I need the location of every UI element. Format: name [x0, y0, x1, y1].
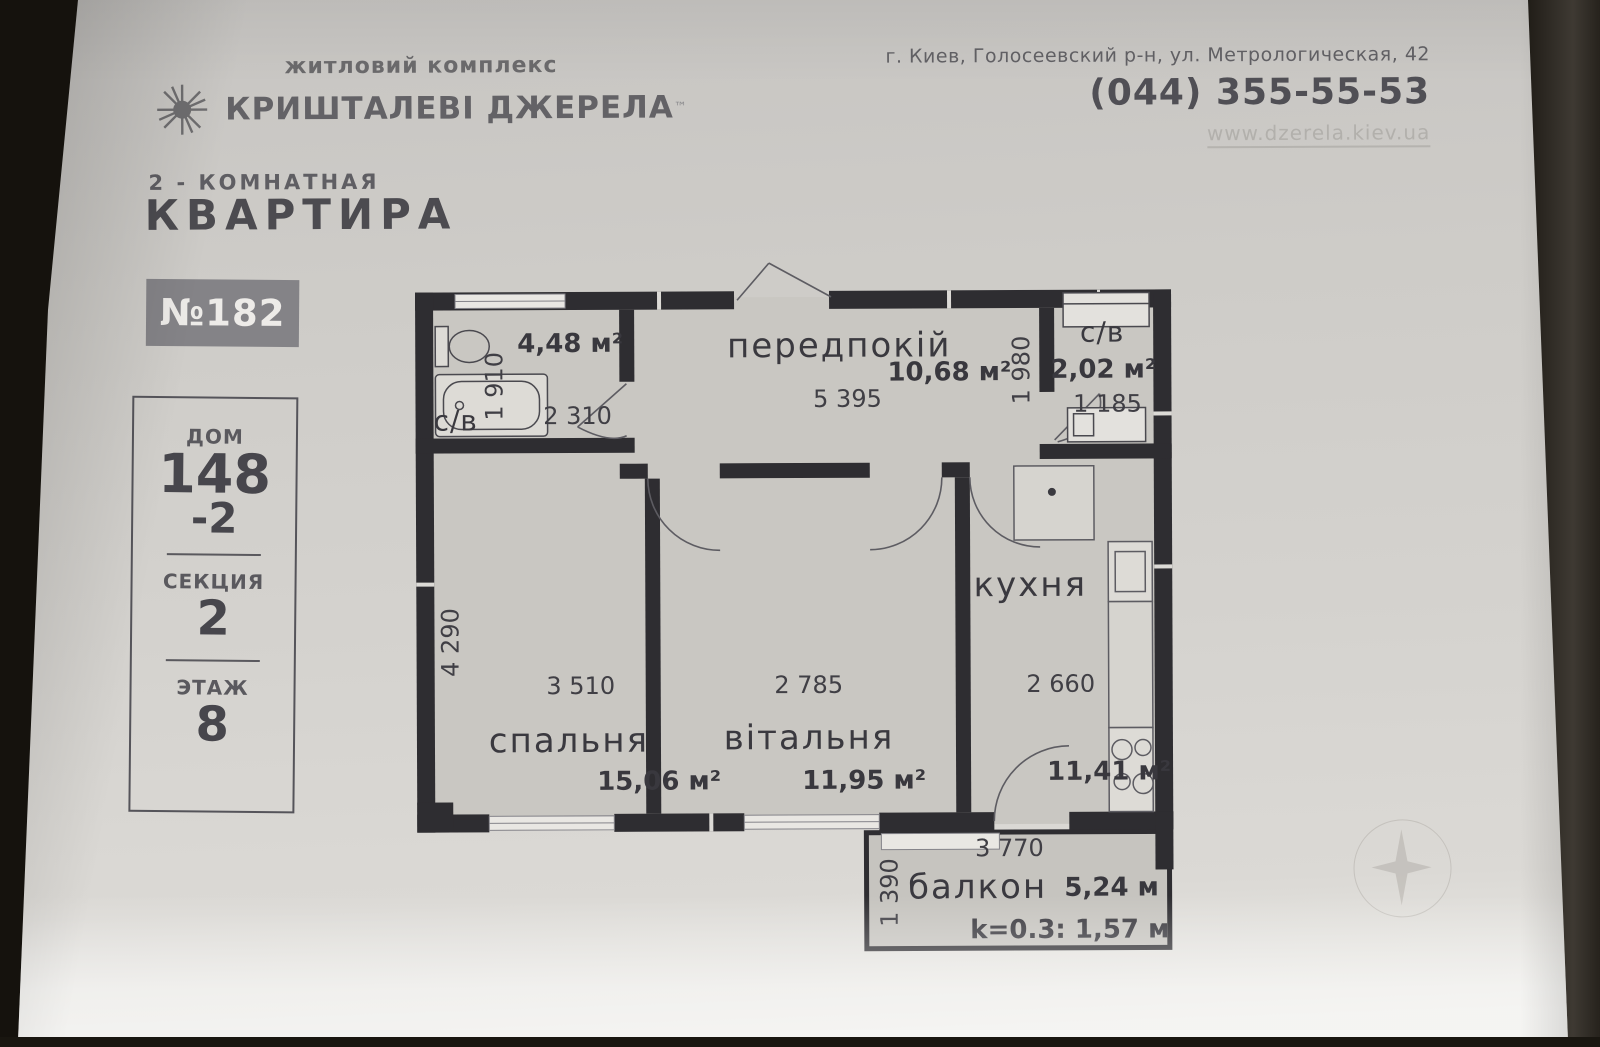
- bedroom-label: спальня: [489, 721, 649, 762]
- bedroom-area: 15,06 м²: [597, 766, 721, 797]
- kitchen-counter-corner: [1014, 466, 1094, 540]
- paper-content: житловий комплекс КРИШТАЛЕВІ ДЖЕРЕЛА™: [0, 0, 1600, 1044]
- kitchen-dim-h: 2 660: [1026, 670, 1095, 698]
- kitchen-area: 11,41 м²: [1047, 756, 1171, 787]
- complex-name: КРИШТАЛЕВІ ДЖЕРЕЛА: [225, 90, 674, 128]
- living-label: вітальня: [724, 718, 895, 759]
- hallway-dim-h: 5 395: [813, 385, 882, 413]
- living-dim-h: 2 785: [774, 671, 843, 699]
- balcony-area: 5,24 м: [1064, 872, 1159, 902]
- balcony-coefficient: k=0.3: 1,57 м: [970, 914, 1169, 945]
- balcony-label: балкон: [908, 867, 1047, 908]
- apartment-info-box: ДОМ 148 -2 СЕКЦИЯ 2 ЭТАЖ 8: [128, 396, 298, 814]
- house-value2: -2: [191, 500, 238, 538]
- house-value: 148: [158, 448, 271, 500]
- balcony-dim-v: 1 390: [875, 858, 903, 927]
- section-value: 2: [196, 593, 230, 644]
- hallway-dim-v: 1 980: [1007, 336, 1035, 405]
- contact-block: г. Киев, Голосеевский р-н, ул. Метрологи…: [885, 43, 1430, 149]
- address-line: г. Киев, Голосеевский р-н, ул. Метрологи…: [885, 43, 1430, 67]
- bathroom1-label: с/в: [433, 404, 477, 437]
- phone-number: (044) 355-55-53: [886, 71, 1431, 114]
- divider: [167, 553, 261, 556]
- photo-of-floorplan-flyer: житловий комплекс КРИШТАЛЕВІ ДЖЕРЕЛА™: [0, 0, 1600, 1047]
- bedroom-dim-h: 3 510: [546, 672, 615, 700]
- apartment-title: КВАРТИРА: [145, 189, 458, 239]
- kitchen-counter: [1108, 601, 1153, 727]
- living-area: 11,95 м²: [802, 765, 926, 796]
- floor-plan: 4,48 м² 1 910 2 310 с/в передпокій 10,68…: [407, 259, 1182, 962]
- bathroom2-dim-h: 1 185: [1073, 390, 1142, 418]
- bathroom2-label: с/в: [1080, 316, 1124, 349]
- apartment-number-badge: №182: [146, 279, 300, 347]
- trademark-sign: ™: [674, 100, 687, 115]
- logo-row: КРИШТАЛЕВІ ДЖЕРЕЛА™: [153, 78, 687, 138]
- sun-logo-icon: [153, 81, 211, 139]
- watermark-compass: [1353, 819, 1449, 915]
- bedroom-dim-v: 4 290: [436, 608, 464, 677]
- complex-subtitle: житловий комплекс: [266, 53, 576, 79]
- paper-sheet: житловий комплекс КРИШТАЛЕВІ ДЖЕРЕЛА™: [0, 0, 1600, 1041]
- balcony-dim-h: 3 770: [975, 834, 1044, 862]
- floor-value: 8: [195, 700, 229, 751]
- photo-bottom-shadow: [0, 1037, 1600, 1047]
- bathroom1-dim-v: 1 910: [480, 352, 508, 421]
- divider: [166, 660, 260, 663]
- hallway-area: 10,68 м²: [887, 357, 1011, 388]
- toilet-tank: [435, 327, 448, 367]
- bathroom1-area: 4,48 м²: [517, 329, 623, 359]
- website-link: www.dzerela.kiev.ua: [1207, 120, 1430, 148]
- kitchen-label: кухня: [973, 565, 1087, 605]
- bathroom1-dim-h: 2 310: [543, 402, 612, 430]
- bathroom2-area: 2,02 м²: [1050, 354, 1156, 384]
